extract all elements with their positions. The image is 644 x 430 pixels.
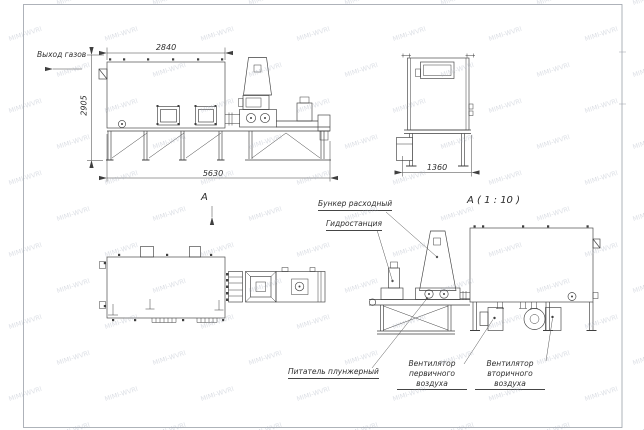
callout-plunger-feeder: Питатель плунжерный	[288, 367, 379, 379]
label-layer: Выход газов 2840 2905 5630 1360 А А ( 1 …	[0, 0, 644, 430]
drawing-sheet: Выход газов 2840 2905 5630 1360 А А ( 1 …	[0, 0, 644, 430]
callout-hydraulic-station: Гидростанция	[326, 219, 382, 231]
plan-view-label: А	[201, 192, 208, 203]
callout-hopper: Бункер расходный	[318, 199, 392, 211]
dim-2840: 2840	[146, 43, 186, 52]
callout-secondary-air-fan: Вентилятор вторичного воздуха	[475, 359, 545, 390]
gas-outlet-label: Выход газов	[37, 50, 86, 60]
dim-2905: 2905	[80, 86, 89, 126]
callout-primary-air-fan: Вентилятор первичного воздуха	[397, 359, 467, 390]
dim-1360: 1360	[417, 163, 457, 172]
detail-view-title: А ( 1 : 10 )	[467, 195, 520, 206]
dim-5630: 5630	[193, 169, 233, 178]
